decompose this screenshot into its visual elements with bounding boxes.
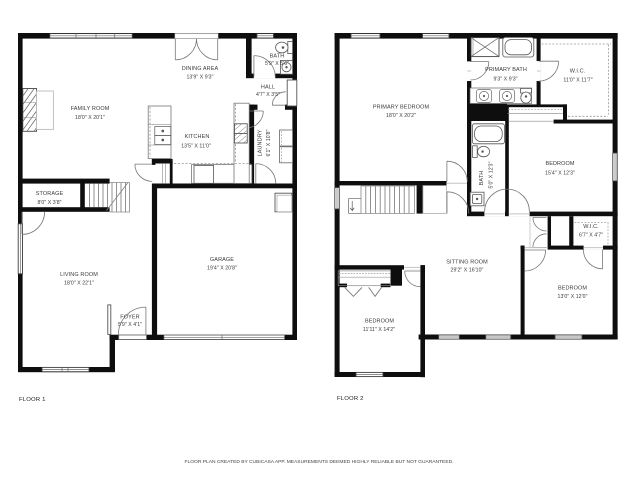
svg-text:DINING AREA: DINING AREA (182, 66, 219, 72)
svg-text:BATH: BATH (479, 171, 485, 186)
svg-text:BEDROOM: BEDROOM (545, 161, 574, 167)
svg-text:KITCHEN: KITCHEN (185, 134, 210, 140)
svg-text:6'1" X 10'8": 6'1" X 10'8" (266, 129, 272, 156)
svg-text:W.I.C.: W.I.C. (583, 224, 599, 230)
svg-text:15'4" X 12'3": 15'4" X 12'3" (545, 170, 575, 176)
svg-text:STORAGE: STORAGE (36, 191, 64, 197)
svg-text:29'2" X 16'10": 29'2" X 16'10" (451, 267, 484, 273)
svg-text:5'9" X 5'6": 5'9" X 5'6" (265, 61, 289, 67)
svg-text:19'4" X 20'8": 19'4" X 20'8" (207, 266, 237, 272)
svg-text:LIVING ROOM: LIVING ROOM (60, 272, 98, 278)
svg-text:FOYER: FOYER (120, 314, 139, 320)
svg-text:BEDROOM: BEDROOM (365, 319, 394, 325)
svg-text:FLOOR 1: FLOOR 1 (19, 397, 46, 403)
svg-text:13'0" X 12'0": 13'0" X 12'0" (558, 294, 588, 300)
svg-text:FAMILY ROOM: FAMILY ROOM (71, 106, 110, 112)
svg-text:PRIMARY BEDROOM: PRIMARY BEDROOM (373, 105, 430, 111)
svg-text:6'7" X 4'7": 6'7" X 4'7" (579, 232, 603, 238)
svg-text:18'0" X 20'1": 18'0" X 20'1" (75, 115, 105, 121)
svg-text:13'5" X 11'0": 13'5" X 11'0" (181, 143, 211, 149)
svg-text:FLOOR PLAN CREATED BY CUBICASA: FLOOR PLAN CREATED BY CUBICASA APP. MEAS… (185, 459, 454, 465)
svg-text:FLOOR 2: FLOOR 2 (337, 396, 364, 402)
svg-text:W.I.C.: W.I.C. (570, 68, 586, 74)
svg-text:BATH: BATH (270, 53, 285, 59)
svg-text:8'0" X 3'8": 8'0" X 3'8" (37, 200, 61, 206)
svg-text:18'0" X 22'1": 18'0" X 22'1" (64, 280, 94, 286)
svg-text:18'0" X 20'2": 18'0" X 20'2" (386, 113, 416, 119)
svg-text:4'7" X 3'5": 4'7" X 3'5" (256, 92, 280, 98)
svg-text:PRIMARY BATH: PRIMARY BATH (485, 67, 527, 73)
svg-text:5'0" X 12'3": 5'0" X 12'3" (489, 161, 495, 188)
svg-text:SITTING ROOM: SITTING ROOM (446, 259, 488, 265)
svg-text:9'3" X 9'3": 9'3" X 9'3" (493, 76, 517, 82)
svg-text:LAUNDRY: LAUNDRY (258, 129, 264, 156)
svg-text:GARAGE: GARAGE (210, 257, 234, 263)
svg-text:11'11" X 14'2": 11'11" X 14'2" (363, 327, 395, 333)
svg-text:5'9" X 4'1": 5'9" X 4'1" (118, 322, 142, 328)
svg-text:BEDROOM: BEDROOM (558, 286, 587, 292)
svg-text:11'0" X 11'7": 11'0" X 11'7" (563, 77, 592, 83)
svg-text:13'9" X 9'3": 13'9" X 9'3" (186, 75, 213, 81)
svg-text:HALL: HALL (261, 84, 275, 90)
